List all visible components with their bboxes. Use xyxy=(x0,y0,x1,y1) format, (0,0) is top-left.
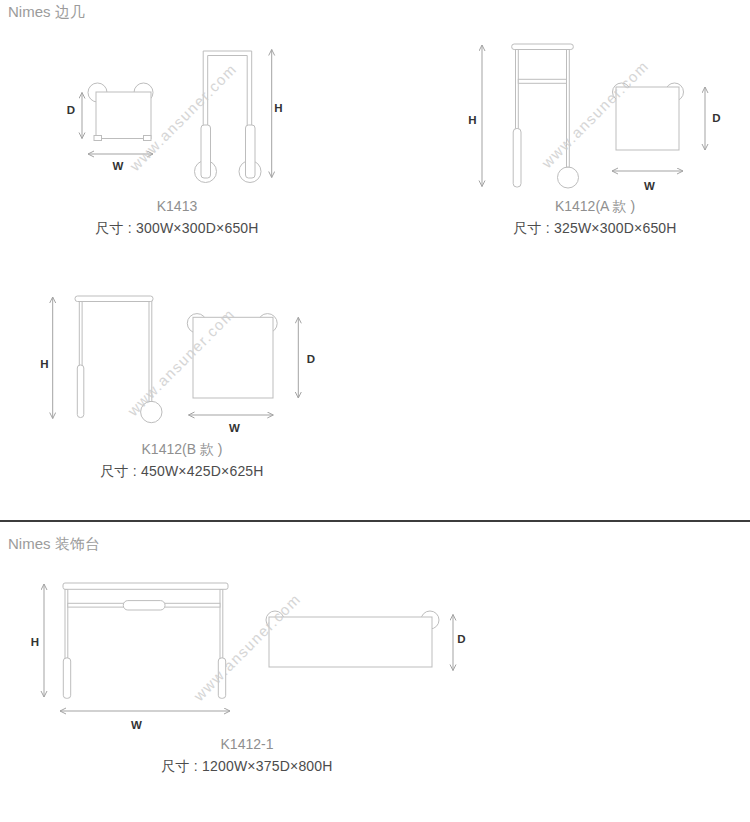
leg-line xyxy=(79,301,82,366)
k1413-drawing: D W H xyxy=(67,50,283,183)
frame-inner-line xyxy=(208,56,248,129)
tabletop-top-view xyxy=(269,617,432,667)
tabletop-front-view xyxy=(75,296,153,302)
product-model: K1412-1 xyxy=(122,737,372,752)
product-model: K1412(B 款 ) xyxy=(57,442,307,457)
ball-foot xyxy=(141,401,162,422)
foot-top-view xyxy=(144,136,152,141)
k1412-1-front-view xyxy=(63,583,228,698)
depth-label: D xyxy=(457,633,465,645)
k1412-1-top-view xyxy=(266,611,439,667)
product-size: 尺寸 : 1200W×375D×800H xyxy=(122,759,372,774)
product-caption-k1412a: K1412(A 款 ) 尺寸 : 325W×300D×650H xyxy=(470,199,720,236)
leg-cylinder xyxy=(77,365,84,418)
leg-line xyxy=(65,589,68,658)
leg-cylinder xyxy=(201,125,211,178)
k1412b-top-view xyxy=(187,314,277,398)
product-model: K1413 xyxy=(52,199,302,214)
k1412b-front-view xyxy=(75,296,162,423)
k1412a-front-view xyxy=(512,44,579,188)
height-label: H xyxy=(274,102,282,114)
tabletop-top-view xyxy=(96,92,151,139)
foot-top-view xyxy=(94,136,102,141)
width-label: W xyxy=(644,180,655,192)
product-size: 尺寸 : 325W×300D×650H xyxy=(470,221,720,236)
width-label: W xyxy=(229,422,240,434)
leg-line xyxy=(220,589,223,658)
product-size: 尺寸 : 300W×300D×650H xyxy=(52,221,302,236)
frame-outer-line xyxy=(203,51,252,128)
k1412a-drawing: H D W xyxy=(468,44,720,192)
height-label: H xyxy=(31,636,39,648)
k1413-top-view xyxy=(88,83,153,141)
product-caption-k1412b: K1412(B 款 ) 尺寸 : 450W×425D×625H xyxy=(57,442,307,479)
k1412-1-drawing: H W D xyxy=(31,583,466,731)
stretcher-center-pill xyxy=(123,601,165,610)
leg-line xyxy=(516,49,519,129)
height-label: H xyxy=(468,114,476,126)
product-caption-k1412-1: K1412-1 尺寸 : 1200W×375D×800H xyxy=(122,737,372,774)
leg-line xyxy=(149,301,152,402)
leg-cylinder xyxy=(513,129,521,188)
tabletop-front-view xyxy=(63,583,228,589)
leg-cylinder xyxy=(63,658,70,698)
depth-label: D xyxy=(712,112,720,124)
tabletop-front-view xyxy=(512,44,574,50)
leg-cylinder xyxy=(246,125,256,178)
depth-label: D xyxy=(67,104,75,116)
product-size: 尺寸 : 450W×425D×625H xyxy=(57,464,307,479)
drawings-layer: D W H H D W xyxy=(0,0,750,822)
leg-line xyxy=(567,49,570,167)
crossbar xyxy=(518,79,566,83)
height-label: H xyxy=(40,358,48,370)
ball-foot xyxy=(558,167,579,188)
k1412a-top-view xyxy=(613,83,684,150)
width-label: W xyxy=(131,719,142,731)
tabletop-top-view xyxy=(616,87,679,150)
product-caption-k1413: K1413 尺寸 : 300W×300D×650H xyxy=(52,199,302,236)
leg-cylinder xyxy=(218,658,225,698)
product-model: K1412(A 款 ) xyxy=(470,199,720,214)
depth-label: D xyxy=(307,353,315,365)
catalog-page: { "sections": [ { "heading": "Nimes 边几",… xyxy=(0,0,750,822)
k1412b-drawing: H D W xyxy=(40,296,315,434)
width-label: W xyxy=(113,160,124,172)
k1413-front-view xyxy=(195,51,262,183)
tabletop-top-view xyxy=(193,317,273,398)
